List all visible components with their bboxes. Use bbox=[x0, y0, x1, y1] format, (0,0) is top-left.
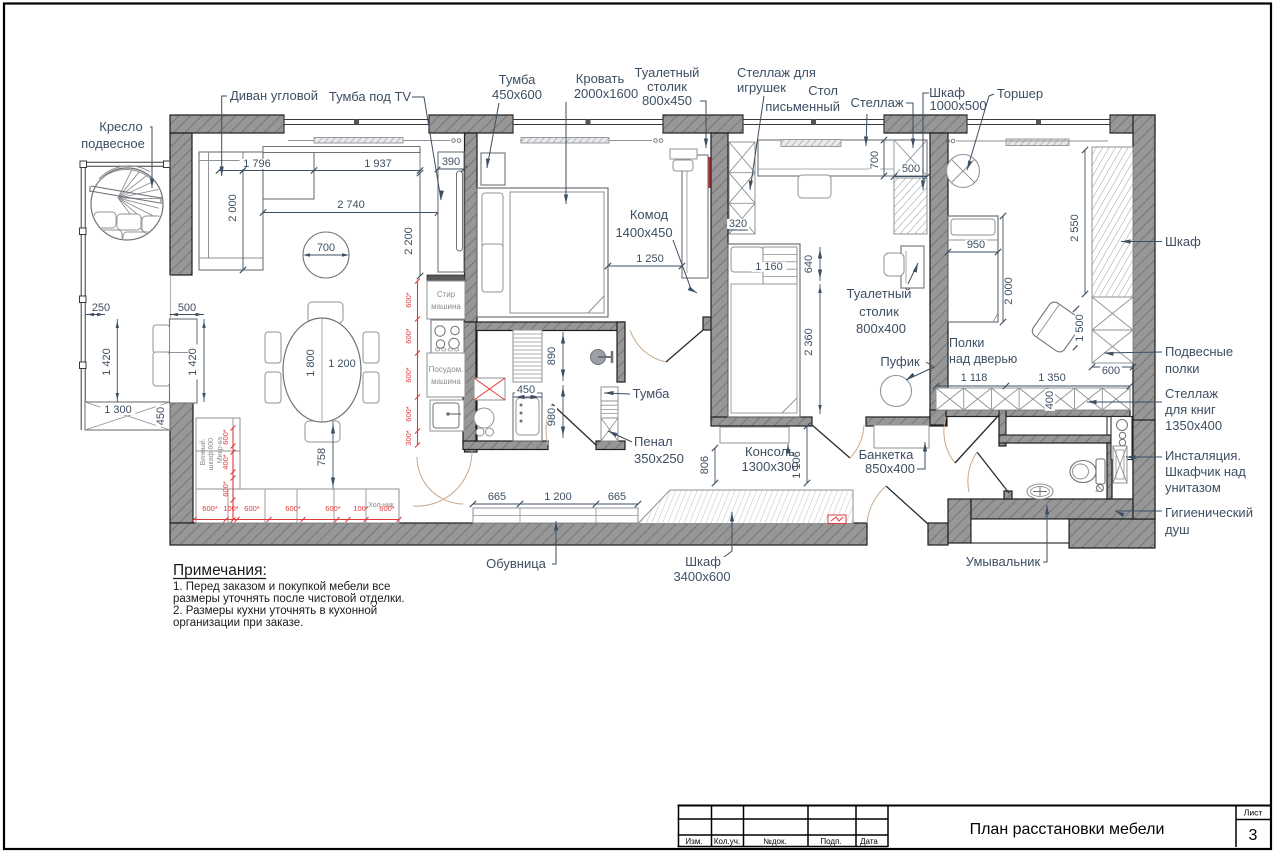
svg-text:700: 700 bbox=[317, 242, 335, 254]
svg-text:Стеллаж для: Стеллаж для bbox=[737, 65, 816, 80]
svg-text:План расстановки мебели: План расстановки мебели bbox=[970, 821, 1165, 838]
svg-text:1 250: 1 250 bbox=[636, 253, 664, 265]
svg-text:Туалетный: Туалетный bbox=[635, 65, 700, 80]
svg-text:Пенал: Пенал bbox=[634, 434, 673, 449]
svg-text:Тумба: Тумба bbox=[499, 72, 537, 87]
svg-text:Диван угловой: Диван угловой bbox=[230, 88, 318, 103]
svg-text:Дата: Дата bbox=[860, 837, 878, 846]
svg-text:столик: столик bbox=[859, 304, 899, 319]
svg-text:Кресло: Кресло bbox=[99, 119, 143, 134]
svg-text:350x250: 350x250 bbox=[634, 451, 684, 466]
svg-text:450: 450 bbox=[517, 384, 535, 396]
svg-text:500: 500 bbox=[902, 163, 920, 175]
svg-text:450x600: 450x600 bbox=[492, 87, 542, 102]
svg-text:850x400: 850x400 bbox=[865, 461, 915, 476]
svg-text:1350x400: 1350x400 bbox=[1165, 418, 1222, 433]
svg-text:Кровать: Кровать bbox=[576, 71, 625, 86]
svg-text:1. Перед заказом и покупкой ме: 1. Перед заказом и покупкой мебели все bbox=[173, 581, 390, 593]
svg-text:665: 665 bbox=[488, 491, 506, 503]
svg-text:400: 400 bbox=[1044, 391, 1056, 409]
svg-text:1 200: 1 200 bbox=[328, 358, 356, 370]
svg-text:Подп.: Подп. bbox=[820, 837, 841, 846]
svg-text:1 118: 1 118 bbox=[961, 372, 988, 384]
svg-text:Стир: Стир bbox=[437, 290, 456, 299]
svg-text:1000x500: 1000x500 bbox=[929, 98, 986, 113]
svg-text:Инсталяция.: Инсталяция. bbox=[1165, 448, 1241, 463]
svg-text:Шкафчик над: Шкафчик над bbox=[1165, 464, 1246, 479]
svg-text:600*: 600* bbox=[325, 504, 341, 513]
svg-text:665: 665 bbox=[608, 491, 626, 503]
svg-text:Примечания:: Примечания: bbox=[173, 562, 267, 579]
svg-text:машина: машина bbox=[431, 302, 461, 311]
svg-text:2 360: 2 360 bbox=[803, 328, 815, 356]
svg-text:1 300: 1 300 bbox=[104, 404, 132, 416]
svg-text:980: 980 bbox=[546, 408, 558, 426]
svg-text:Умывальник: Умывальник bbox=[966, 554, 1041, 569]
svg-text:950: 950 bbox=[967, 239, 985, 251]
svg-text:Обувница: Обувница bbox=[486, 556, 547, 571]
svg-text:Кол.уч.: Кол.уч. bbox=[714, 837, 740, 846]
svg-text:организации при заказе.: организации при заказе. bbox=[173, 617, 303, 629]
svg-text:1400x450: 1400x450 bbox=[615, 225, 672, 240]
svg-text:2000x1600: 2000x1600 bbox=[574, 86, 638, 101]
svg-text:игрушек: игрушек bbox=[737, 80, 786, 95]
svg-text:Винный.: Винный. bbox=[199, 438, 207, 465]
svg-text:600*: 600* bbox=[221, 429, 230, 445]
svg-text:390: 390 bbox=[442, 156, 460, 168]
svg-text:1 800: 1 800 bbox=[305, 349, 317, 377]
svg-text:800x450: 800x450 bbox=[642, 93, 692, 108]
svg-text:1 796: 1 796 bbox=[243, 158, 271, 170]
svg-text:2. Размеры кухни уточнять в ку: 2. Размеры кухни уточнять в кухонной bbox=[173, 605, 377, 617]
svg-text:600*: 600* bbox=[379, 504, 395, 513]
svg-text:подвесное: подвесное bbox=[81, 136, 145, 151]
svg-text:1 420: 1 420 bbox=[187, 348, 199, 376]
svg-text:Лист: Лист bbox=[1244, 808, 1263, 818]
svg-text:600*: 600* bbox=[404, 406, 413, 422]
svg-text:Банкетка: Банкетка bbox=[859, 447, 914, 462]
svg-text:2 550: 2 550 bbox=[1069, 214, 1081, 242]
svg-text:1 937: 1 937 bbox=[364, 158, 392, 170]
svg-text:для книг: для книг bbox=[1165, 402, 1216, 417]
svg-text:столик: столик bbox=[647, 79, 687, 94]
svg-text:300*: 300* bbox=[404, 430, 413, 446]
svg-text:Подвесные: Подвесные bbox=[1165, 344, 1233, 359]
svg-text:унитазом: унитазом bbox=[1165, 480, 1221, 495]
svg-text:758: 758 bbox=[316, 448, 328, 466]
svg-text:3400x600: 3400x600 bbox=[673, 569, 730, 584]
svg-text:600*: 600* bbox=[244, 504, 260, 513]
svg-text:1 500: 1 500 bbox=[1074, 314, 1086, 342]
svg-text:600*: 600* bbox=[404, 367, 413, 383]
svg-text:450: 450 bbox=[155, 407, 167, 425]
svg-text:Тумба: Тумба bbox=[633, 386, 671, 401]
svg-text:320: 320 bbox=[729, 218, 747, 230]
svg-text:400*: 400* bbox=[221, 454, 230, 470]
svg-text:600*: 600* bbox=[404, 328, 413, 344]
svg-text:1 420: 1 420 bbox=[101, 348, 113, 376]
svg-text:600*: 600* bbox=[221, 481, 230, 497]
svg-text:Изм.: Изм. bbox=[685, 837, 702, 846]
svg-text:Посудом.: Посудом. bbox=[429, 365, 464, 374]
svg-text:2 200: 2 200 bbox=[403, 227, 415, 255]
svg-text:Тумба под TV: Тумба под TV bbox=[329, 89, 411, 104]
svg-text:Шкаф: Шкаф bbox=[685, 554, 721, 569]
svg-text:над дверью: над дверью bbox=[949, 352, 1017, 366]
svg-text:600*: 600* bbox=[404, 292, 413, 308]
svg-text:письменный: письменный bbox=[765, 99, 840, 114]
svg-text:Стеллаж: Стеллаж bbox=[1165, 386, 1218, 401]
svg-text:душ: душ bbox=[1165, 522, 1190, 537]
svg-text:700: 700 bbox=[869, 151, 881, 169]
svg-text:Стеллаж: Стеллаж bbox=[850, 95, 903, 110]
svg-text:500: 500 bbox=[178, 302, 196, 314]
svg-text:Комод: Комод bbox=[630, 207, 669, 222]
svg-text:1 200: 1 200 bbox=[544, 491, 572, 503]
svg-text:250: 250 bbox=[92, 302, 110, 314]
svg-text:600: 600 bbox=[1102, 365, 1120, 377]
svg-text:640: 640 bbox=[803, 255, 815, 273]
svg-text:Стол: Стол bbox=[808, 83, 838, 98]
svg-text:Пуфик: Пуфик bbox=[880, 354, 920, 369]
svg-text:Торшер: Торшер bbox=[997, 86, 1043, 101]
svg-text:2 000: 2 000 bbox=[227, 194, 239, 222]
svg-text:машина: машина bbox=[431, 377, 461, 386]
svg-text:1 350: 1 350 bbox=[1038, 372, 1066, 384]
svg-text:2 740: 2 740 bbox=[337, 199, 365, 211]
svg-text:100*: 100* bbox=[353, 504, 369, 513]
svg-text:3: 3 bbox=[1249, 827, 1258, 844]
svg-text:Гигиенический: Гигиенический bbox=[1165, 505, 1253, 520]
svg-text:1300x300: 1300x300 bbox=[741, 459, 798, 474]
svg-text:600*: 600* bbox=[285, 504, 301, 513]
svg-text:800x400: 800x400 bbox=[856, 321, 906, 336]
svg-text:100*: 100* bbox=[223, 504, 239, 513]
svg-text:полки: полки bbox=[1165, 361, 1200, 376]
svg-text:Шкаф: Шкаф bbox=[1165, 234, 1201, 249]
svg-text:⌀: ⌀ bbox=[1095, 488, 1098, 494]
svg-text:размеры уточнять после чистово: размеры уточнять после чистовой отделки. bbox=[173, 593, 405, 605]
svg-text:№док.: №док. bbox=[763, 837, 786, 846]
svg-text:шкаф.600: шкаф.600 bbox=[208, 438, 215, 470]
svg-text:2 000: 2 000 bbox=[1003, 277, 1015, 305]
svg-text:806: 806 bbox=[699, 456, 711, 474]
svg-text:Полки: Полки bbox=[949, 336, 984, 350]
svg-text:Туалетный: Туалетный bbox=[847, 286, 912, 301]
svg-text:1 160: 1 160 bbox=[755, 261, 783, 273]
svg-text:890: 890 bbox=[546, 347, 558, 365]
svg-text:600*: 600* bbox=[202, 504, 218, 513]
